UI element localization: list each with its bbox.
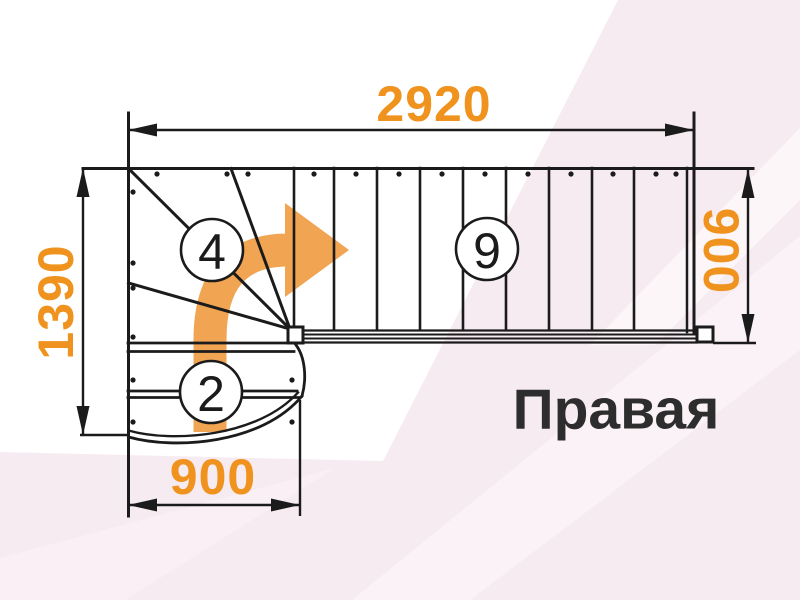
upper-flight-width-dimension-label: 900 [696, 208, 746, 294]
lower-flight-width-dimension-label: 900 [170, 452, 256, 502]
newel-post-center [288, 327, 303, 343]
winder-step-count-badge: 4 [198, 227, 226, 277]
stair-plan-diagram: 2920 1390 900 900 4 9 2 Правая [0, 0, 800, 600]
lower-flight-step-count-badge: 2 [197, 369, 225, 419]
total-run-dimension-label: 2920 [376, 79, 491, 129]
newel-post-right [697, 327, 713, 342]
total-depth-dimension-label: 1390 [31, 244, 81, 359]
upper-flight-step-count-badge: 9 [473, 226, 501, 276]
stair-orientation-label: Правая [513, 382, 720, 439]
